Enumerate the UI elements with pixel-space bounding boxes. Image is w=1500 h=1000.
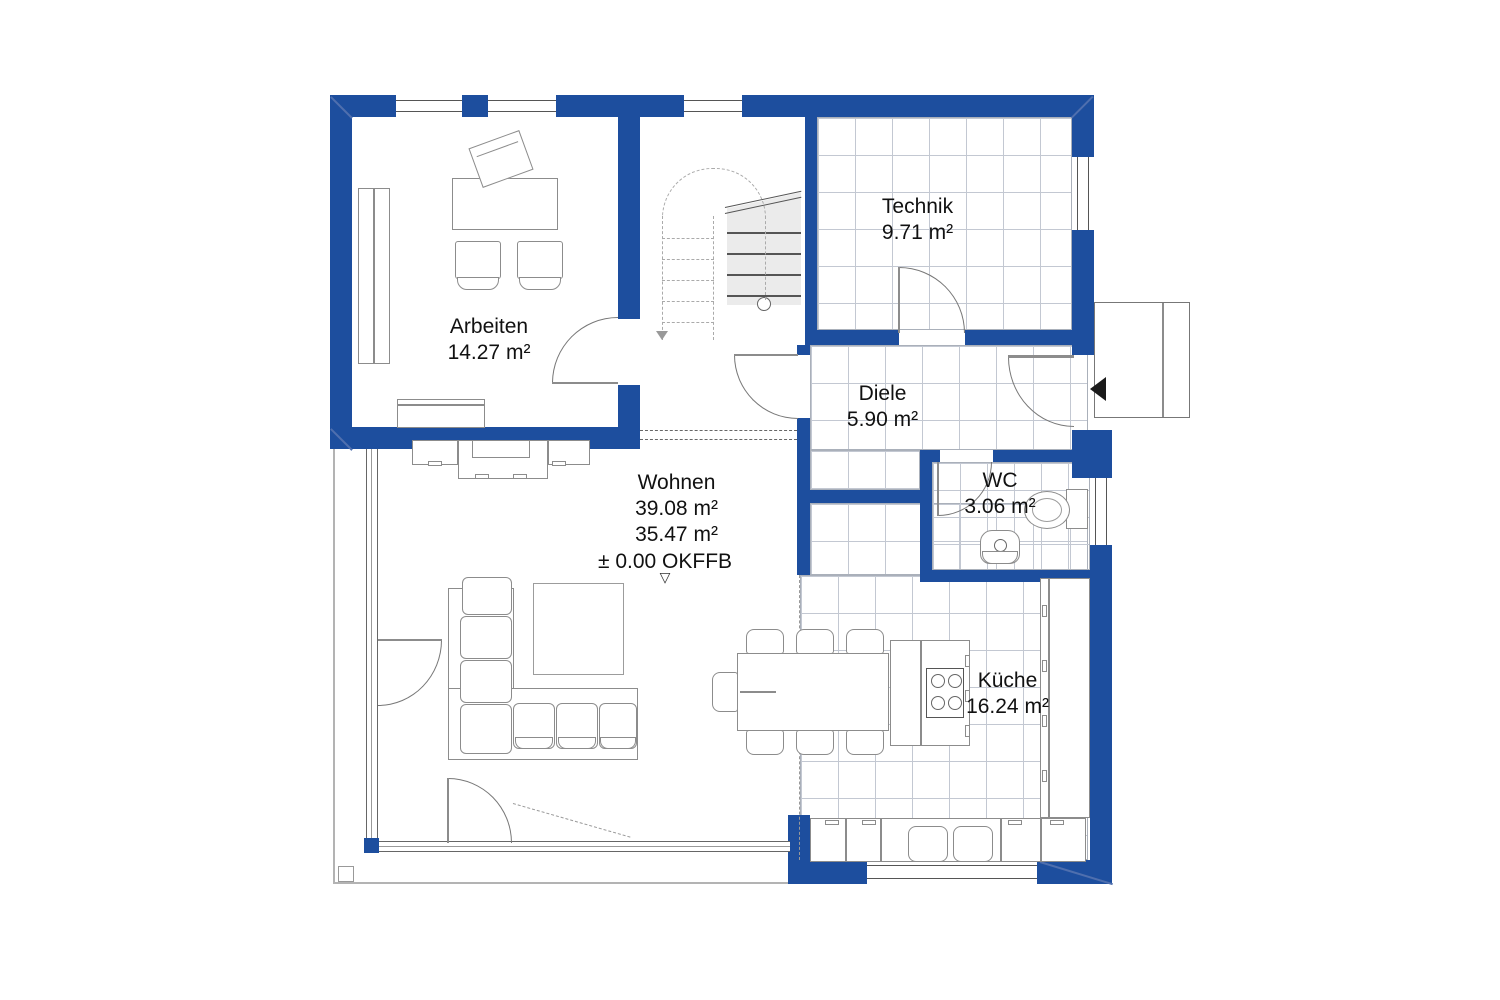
room-area: 5.90 m² (795, 407, 970, 433)
stair-newel-post (757, 297, 771, 311)
wall-segment (805, 330, 899, 345)
overhang-line-bottom (333, 882, 790, 884)
wall-segment (556, 95, 684, 117)
door-leaf (898, 267, 900, 333)
door-arc (448, 778, 512, 843)
counter-divider (1000, 819, 1002, 861)
room-label-arbeiten: Arbeiten 14.27 m² (399, 314, 579, 366)
visitor-chair-seat (519, 277, 561, 290)
wall-segment (797, 418, 810, 575)
counter-handle (1042, 770, 1047, 782)
visitor-chair (517, 241, 563, 279)
sofa-seat-edge (600, 737, 636, 749)
wall-segment (993, 450, 1090, 462)
counter-divider (880, 819, 882, 861)
porch-divider (1162, 303, 1164, 417)
door-leaf (734, 354, 798, 356)
visitor-chair (455, 241, 501, 279)
wall-segment (618, 385, 640, 427)
stairs-dashed-step (662, 238, 714, 239)
stairs-dashed-step (662, 301, 714, 302)
entrance-arrow-icon (1090, 377, 1106, 401)
stairs-dashed-edge (765, 216, 766, 300)
counter-handle-top (1050, 820, 1064, 825)
entrance-porch (1094, 302, 1190, 418)
dining-chair (846, 730, 884, 755)
wall-segment (797, 345, 810, 355)
counter-handle (1042, 605, 1047, 617)
sofa-cushion (460, 660, 512, 703)
room-area-gross: 39.08 m² (589, 496, 764, 522)
island-handle (965, 725, 970, 737)
dining-chair (746, 629, 784, 654)
window (1090, 478, 1112, 545)
door-leaf (552, 382, 618, 384)
room-area-net: 35.47 m² (589, 522, 764, 548)
wall-segment (920, 450, 940, 462)
room-name: Diele (795, 381, 970, 407)
stairs-dashed-flight-arc (662, 168, 766, 218)
kitchen-counter-bottom (810, 818, 1086, 862)
desk (452, 178, 558, 230)
lowboard-handle (552, 461, 566, 466)
glass-wall-left (366, 449, 378, 841)
stair-step (727, 232, 801, 234)
room-name: Wohnen (589, 470, 764, 496)
sofa-seat-edge (558, 737, 596, 749)
sliding-panel-line (513, 803, 631, 838)
sink-basin (908, 826, 948, 862)
glass-corner-post (364, 838, 379, 853)
dining-chair (746, 730, 784, 755)
window (684, 95, 742, 117)
sink-basin (953, 826, 993, 862)
room-name: WC (930, 468, 1070, 494)
room-area: 16.24 m² (920, 694, 1095, 720)
counter-divider (1040, 819, 1042, 861)
lowboard-handle (475, 474, 489, 479)
wall-segment (1072, 230, 1094, 355)
room-area: 3.06 m² (930, 494, 1070, 520)
door-arc (378, 640, 442, 706)
room-label-technik: Technik 9.71 m² (830, 194, 1005, 246)
sofa-cushion (460, 616, 512, 659)
opening-dashed-line (640, 430, 797, 431)
room-name: Arbeiten (399, 314, 579, 340)
sideboard-shelf-line (398, 404, 484, 406)
wall-segment (330, 95, 352, 449)
stair-walkline-arrow (656, 331, 668, 340)
window (396, 95, 462, 117)
sofa-cushion (460, 704, 512, 754)
lowboard-handle (513, 474, 527, 479)
door-leaf (447, 778, 449, 843)
level-datum-icon: ▽ (650, 570, 680, 584)
room-label-diele: Diele 5.90 m² (795, 381, 970, 433)
visitor-chair-seat (457, 277, 499, 290)
floor-plan: Arbeiten 14.27 m² Technik 9.71 m² Diele … (0, 0, 1500, 1000)
counter-handle-top (862, 820, 876, 825)
dining-chair (846, 629, 884, 654)
dining-chair (796, 730, 834, 755)
room-label-wohnen: Wohnen 39.08 m² 35.47 m² (589, 470, 764, 548)
lowboard-inner (472, 440, 530, 458)
wall-segment (462, 95, 488, 117)
sofa-seat-edge (515, 737, 553, 749)
room-area: 14.27 m² (399, 340, 579, 366)
dining-chair (796, 629, 834, 654)
wall-segment (810, 860, 867, 884)
bookshelf-divider (373, 189, 375, 363)
coffee-table (533, 583, 624, 675)
glass-wall-bottom (376, 841, 790, 852)
room-name: Küche (920, 668, 1095, 694)
stairs-dashed-step (662, 259, 714, 260)
door-leaf (378, 639, 442, 641)
room-name: Technik (830, 194, 1005, 220)
stairs-dashed-step (662, 280, 714, 281)
downpipe-symbol (338, 866, 354, 882)
room-area: 9.71 m² (830, 220, 1005, 246)
counter-handle-top (825, 820, 839, 825)
door-arc (734, 355, 798, 419)
wall-segment (965, 330, 1072, 345)
office-chair-backrest (477, 141, 519, 157)
window (1072, 157, 1094, 230)
sofa-cushion (462, 577, 512, 615)
window (488, 95, 556, 117)
dining-chair (712, 672, 738, 712)
door-leaf (1008, 355, 1074, 358)
wall-segment (810, 490, 920, 503)
wall-segment (618, 117, 640, 319)
floor-tiles-corridor (810, 450, 920, 490)
wc-sink-front (982, 551, 1018, 564)
island-handle (965, 655, 970, 667)
opening-dashed-line (640, 439, 797, 440)
counter-divider (845, 819, 847, 861)
stair-step (727, 253, 801, 255)
wall-segment (805, 117, 817, 332)
stairs-dashed-step (662, 322, 714, 323)
counter-handle-top (1008, 820, 1022, 825)
room-label-kueche: Küche 16.24 m² (920, 668, 1095, 720)
stair-step (727, 274, 801, 276)
window (867, 860, 1037, 884)
wall-segment (742, 95, 1094, 117)
room-label-wc: WC 3.06 m² (930, 468, 1070, 520)
lowboard-handle (428, 461, 442, 466)
wall-segment (1072, 117, 1094, 157)
dining-table-line (740, 691, 776, 693)
